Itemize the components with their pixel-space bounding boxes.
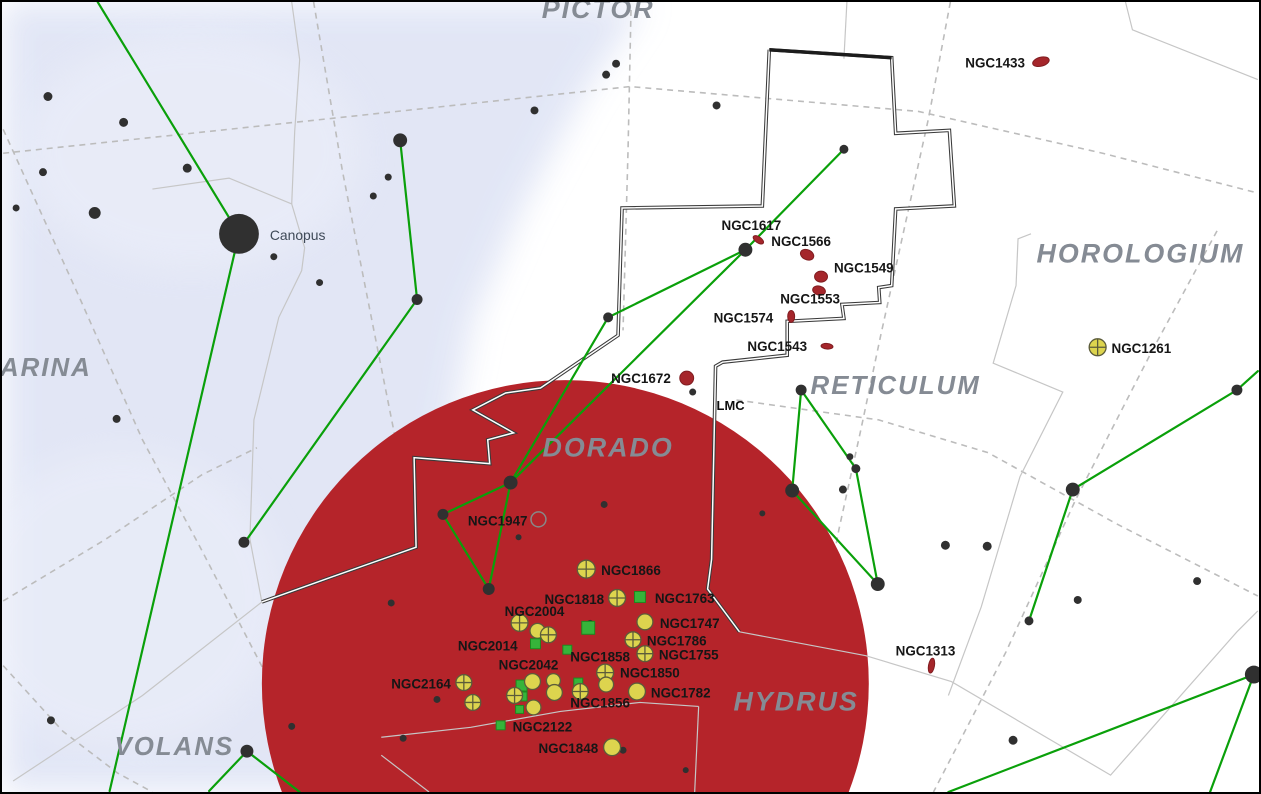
object-ngc1763-label[interactable]: NGC1763 <box>655 591 715 606</box>
constellation-label-dorado: DORADO <box>542 433 673 463</box>
star <box>1245 666 1259 684</box>
object-ngc1574-label[interactable]: NGC1574 <box>714 310 774 325</box>
constellation-label-volans: VOLANS <box>114 733 234 761</box>
star <box>689 389 696 396</box>
star <box>846 453 853 460</box>
object-ngc1848-label[interactable]: NGC1848 <box>538 741 598 756</box>
object-ngc2014-label[interactable]: NGC2014 <box>458 639 518 654</box>
constellation-line <box>1029 371 1258 621</box>
star <box>871 577 885 591</box>
object-ngc2122-label[interactable]: NGC2122 <box>513 719 573 734</box>
object-ngc1313-galaxy-symbol[interactable] <box>927 658 935 674</box>
object-unnamed-nebula-symbol <box>516 705 524 713</box>
star <box>183 164 192 173</box>
constellation-boundary <box>1125 2 1257 80</box>
object-ngc1947-label[interactable]: NGC1947 <box>468 513 528 528</box>
star <box>316 279 323 286</box>
object-ngc1543-galaxy-symbol[interactable] <box>821 343 833 350</box>
object-ngc2122-nebula-symbol[interactable] <box>496 721 505 730</box>
grid-line <box>933 231 1217 792</box>
object-ngc1549-galaxy-symbol[interactable] <box>815 271 828 282</box>
object-ngc1553-label[interactable]: NGC1553 <box>780 291 840 306</box>
constellation-line <box>948 675 1253 792</box>
star <box>1009 736 1018 745</box>
star <box>288 723 295 730</box>
grid-line <box>829 2 950 582</box>
star <box>113 415 121 423</box>
star <box>43 92 52 101</box>
star <box>388 599 395 606</box>
star <box>1074 596 1082 604</box>
object-ngc1782-cluster-symbol[interactable] <box>629 683 646 700</box>
object-ngc1433-label[interactable]: NGC1433 <box>965 56 1025 71</box>
constellation-line <box>608 250 745 318</box>
object-unnamed-cluster-symbol <box>546 685 562 701</box>
object-ngc1850-label[interactable]: NGC1850 <box>620 666 680 681</box>
star <box>851 464 860 473</box>
object-ngc1786-label[interactable]: NGC1786 <box>647 634 707 649</box>
object-ngc1747-label[interactable]: NGC1747 <box>660 616 720 631</box>
object-ngc1566-label[interactable]: NGC1566 <box>771 234 831 249</box>
object-ngc1549-label[interactable]: NGC1549 <box>834 261 894 276</box>
constellation-label-hydrus: HYDRUS <box>733 686 858 716</box>
object-ngc1782-label[interactable]: NGC1782 <box>651 685 711 700</box>
object-ngc1261-label[interactable]: NGC1261 <box>1112 341 1172 356</box>
object-unnamed-nebula-symbol <box>531 639 541 649</box>
object-unnamed-cluster-symbol <box>525 674 541 690</box>
sky-chart-canvas[interactable]: NGC1433NGC1617NGC1566NGC1549NGC1553NGC15… <box>2 2 1259 792</box>
object-ngc1313-label[interactable]: NGC1313 <box>896 644 956 659</box>
constellation-label-horologium: HOROLOGIUM <box>1036 239 1244 269</box>
star <box>13 204 20 211</box>
object-ngc1858-nebula-symbol[interactable] <box>582 621 595 634</box>
constellation-label-reticulum: RETICULUM <box>811 372 981 400</box>
object-ngc1866-label[interactable]: NGC1866 <box>601 563 661 578</box>
star <box>238 537 249 548</box>
object-ngc1672-label[interactable]: NGC1672 <box>611 371 671 386</box>
object-unnamed-cluster-symbol <box>526 700 541 715</box>
star <box>785 484 799 498</box>
grid-line <box>623 10 631 330</box>
object-ngc1755-label[interactable]: NGC1755 <box>659 648 719 663</box>
constellation-label-pictor: PICTOR <box>542 2 655 24</box>
constellation-label-carina: CARINA <box>2 354 92 382</box>
object-ngc1848-cluster-symbol[interactable] <box>604 739 621 756</box>
star <box>612 60 620 68</box>
star <box>400 735 407 742</box>
constellation-line <box>1210 675 1254 792</box>
star <box>531 106 539 114</box>
star <box>119 118 128 127</box>
star <box>713 101 721 109</box>
star <box>603 312 613 322</box>
star <box>270 253 277 260</box>
object-ngc1566-galaxy-symbol[interactable] <box>799 247 816 262</box>
object-label-lmc[interactable]: LMC <box>717 398 745 413</box>
star <box>504 476 518 490</box>
star <box>47 716 55 724</box>
star <box>983 542 992 551</box>
star <box>437 509 448 520</box>
star <box>412 294 423 305</box>
star-label-canopus[interactable]: Canopus <box>270 227 326 243</box>
object-ngc1858-label[interactable]: NGC1858 <box>570 650 630 665</box>
object-ngc1574-galaxy-symbol[interactable] <box>788 310 795 322</box>
object-ngc1856-label[interactable]: NGC1856 <box>570 695 630 710</box>
object-ngc1747-cluster-symbol[interactable] <box>637 614 653 630</box>
star <box>941 541 950 550</box>
star <box>602 71 610 79</box>
object-ngc1543-label[interactable]: NGC1543 <box>747 339 807 354</box>
object-ngc1763-nebula-symbol[interactable] <box>634 592 645 603</box>
object-ngc1672-galaxy-symbol[interactable] <box>680 371 694 385</box>
star <box>516 534 522 540</box>
star <box>370 193 377 200</box>
constellation-boundary <box>948 234 1062 696</box>
star <box>839 486 847 494</box>
star <box>839 145 848 154</box>
star <box>385 174 392 181</box>
star <box>683 767 689 773</box>
object-unnamed-cluster-symbol <box>599 677 614 692</box>
star-chart-window: NGC1433NGC1617NGC1566NGC1549NGC1553NGC15… <box>0 0 1261 794</box>
star <box>796 385 807 396</box>
object-ngc1433-galaxy-symbol[interactable] <box>1032 55 1051 68</box>
selected-boundary-thick-edge <box>769 50 891 58</box>
object-ngc2004-label[interactable]: NGC2004 <box>505 604 565 619</box>
object-ngc2042-label[interactable]: NGC2042 <box>499 658 559 673</box>
star <box>1193 577 1201 585</box>
object-ngc1617-label[interactable]: NGC1617 <box>722 218 782 233</box>
star <box>738 243 752 257</box>
star <box>89 207 101 219</box>
star <box>1066 483 1080 497</box>
star <box>240 745 253 758</box>
star <box>1025 616 1034 625</box>
star <box>433 696 440 703</box>
star <box>759 510 765 516</box>
star <box>39 168 47 176</box>
constellation-boundary <box>844 2 847 59</box>
star <box>1231 385 1242 396</box>
star-canopus[interactable] <box>219 214 259 254</box>
star <box>601 501 608 508</box>
star <box>483 583 495 595</box>
object-ngc2164-label[interactable]: NGC2164 <box>391 677 451 692</box>
star <box>393 133 407 147</box>
